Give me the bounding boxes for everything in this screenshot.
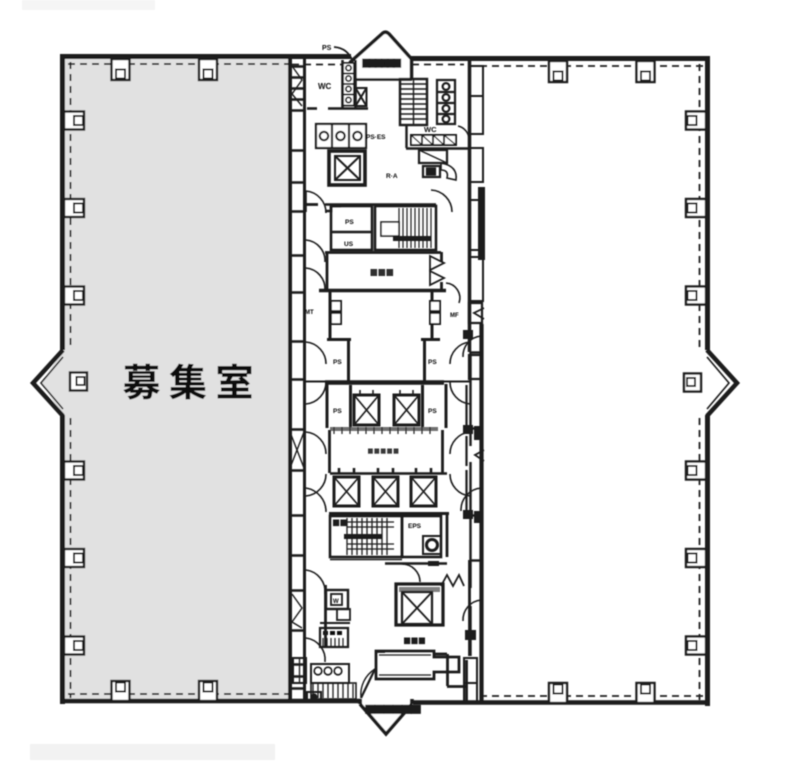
svg-text:PS: PS [333, 408, 342, 415]
svg-text:MF: MF [450, 313, 459, 319]
svg-text:PS·ES: PS·ES [366, 134, 386, 141]
svg-text:PS: PS [322, 45, 332, 52]
svg-text:WC: WC [424, 125, 437, 134]
svg-text:EPS: EPS [408, 523, 422, 530]
svg-text:WC: WC [318, 82, 332, 91]
svg-text:W: W [333, 599, 339, 605]
svg-text:R·A: R·A [386, 173, 398, 180]
svg-text:PS: PS [428, 359, 437, 366]
svg-text:PS: PS [345, 219, 354, 226]
svg-text:PS: PS [428, 408, 437, 415]
svg-text:MT: MT [305, 310, 314, 316]
svg-text:US: US [344, 241, 354, 248]
svg-text:PS: PS [333, 359, 342, 366]
